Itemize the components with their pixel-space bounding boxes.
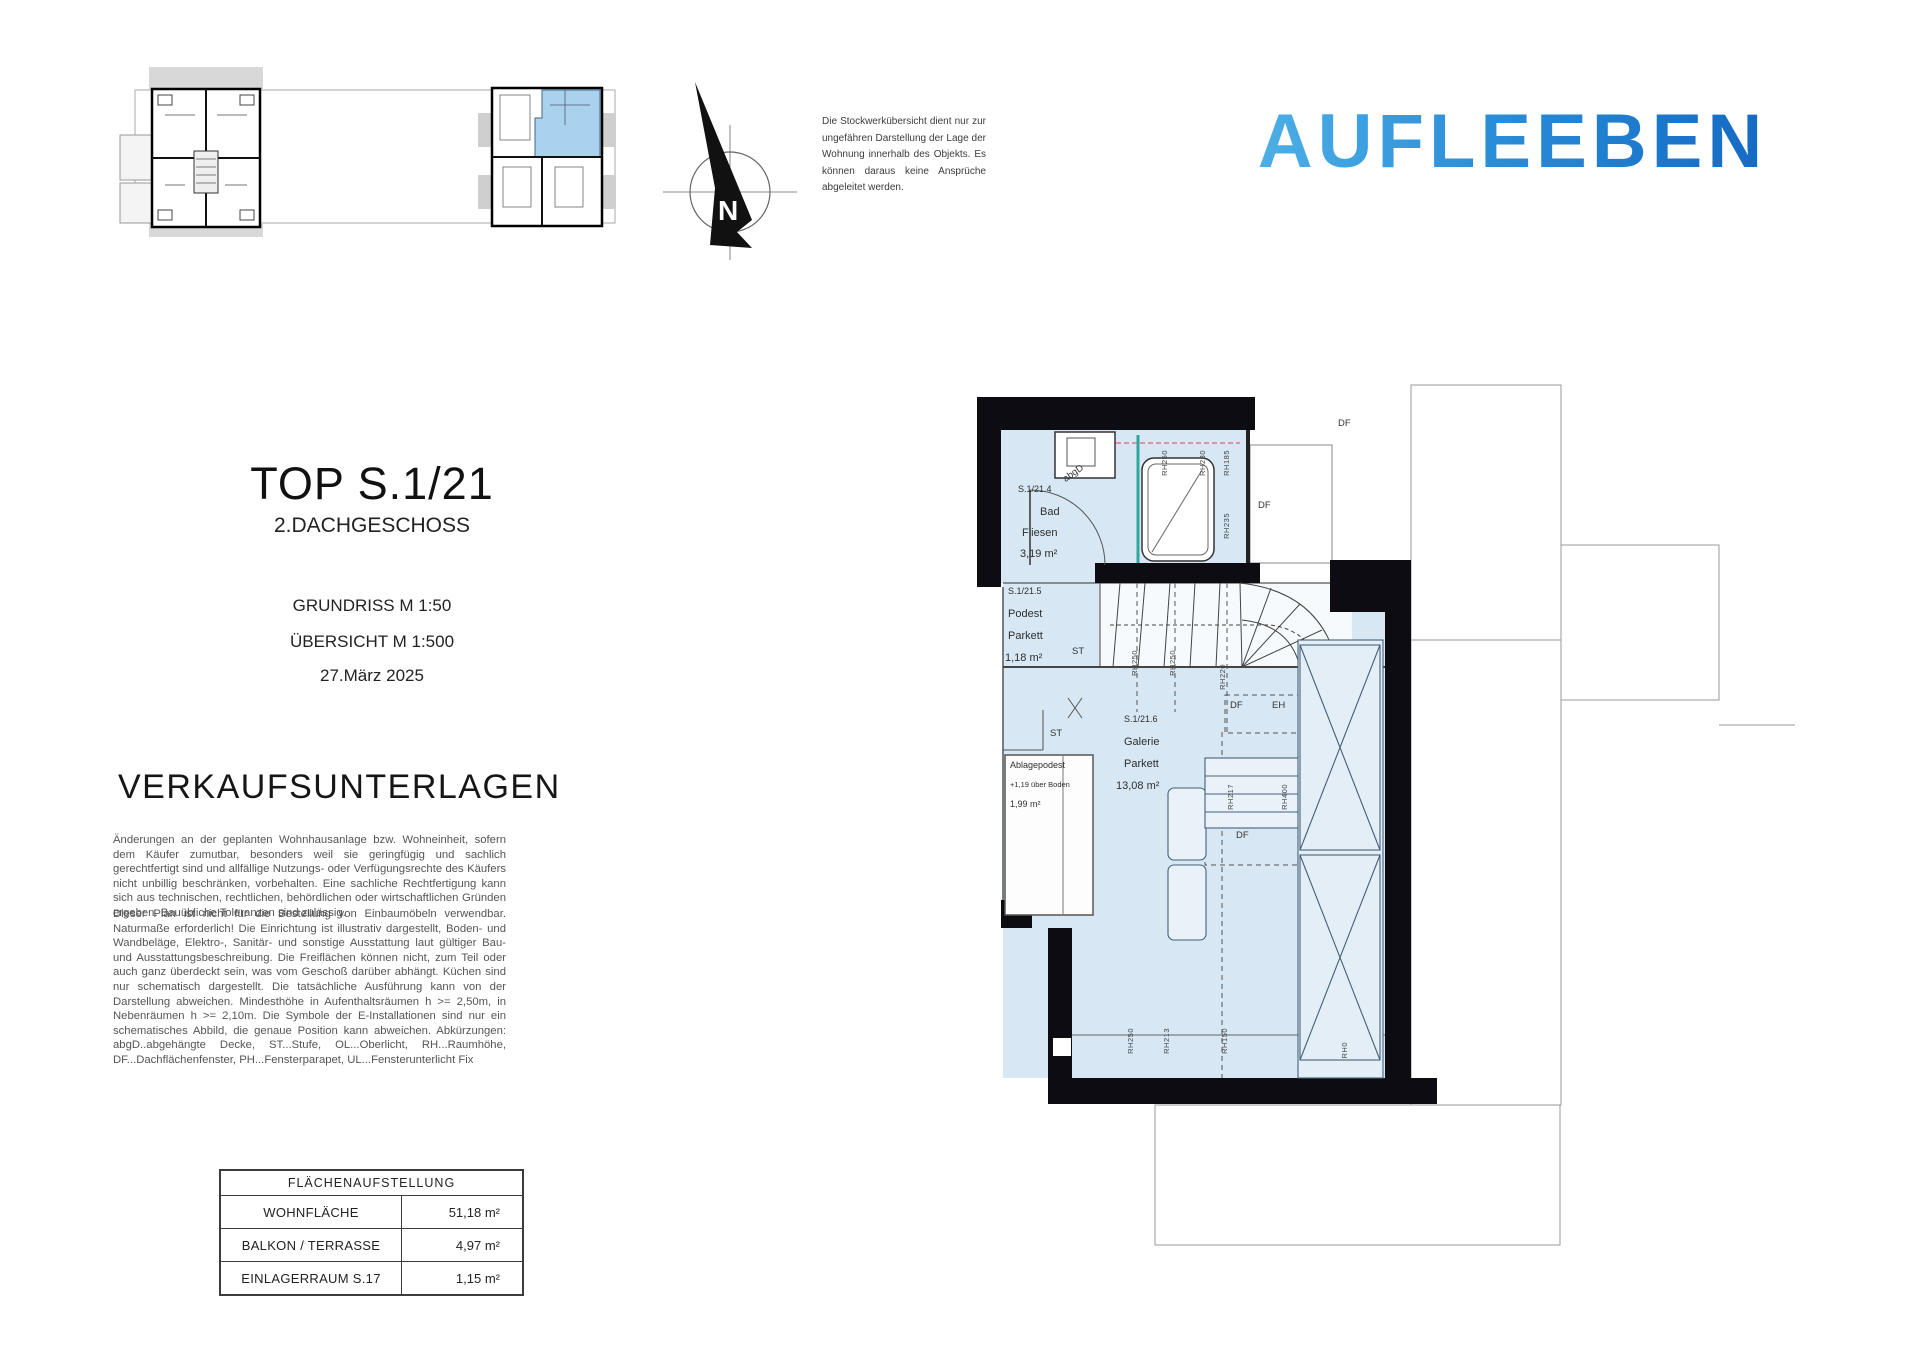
room-area: 1,18 m² [1005, 652, 1042, 664]
room-floor: Fliesen [1022, 527, 1057, 539]
df-label: DF [1230, 700, 1243, 711]
room-area: 13,08 m² [1116, 780, 1159, 792]
df-label: DF [1338, 418, 1351, 429]
rh-label: RH250 [1160, 450, 1169, 476]
ablagepodest-name: Ablagepodest [1010, 760, 1065, 770]
room-name: Galerie [1124, 736, 1159, 748]
rh-label: RH217 [1226, 784, 1235, 810]
rh-label: RH235 [1222, 513, 1231, 539]
rh-label: RH400 [1280, 784, 1289, 810]
abgd-label: abgD [1061, 462, 1086, 484]
room-id: S.1/21.6 [1124, 714, 1158, 724]
eh-label: EH [1272, 700, 1285, 711]
df-label: DF [1236, 830, 1249, 841]
room-floor: Parkett [1008, 630, 1043, 642]
room-name: Podest [1008, 608, 1042, 620]
st-label: ST [1072, 646, 1084, 657]
floor-plan-labels: S.1/21.4 Bad Fliesen 3,19 m² S.1/21.5 Po… [0, 0, 1920, 1358]
rh-label: RH0 [1340, 1042, 1349, 1059]
room-name: Bad [1040, 506, 1060, 518]
rh-label: RH230 [1198, 450, 1207, 476]
rh-label: RH185 [1222, 450, 1231, 476]
room-area: 3,19 m² [1020, 548, 1057, 560]
rh-label: RH250 [1130, 650, 1139, 676]
rh-label: RH250 [1168, 650, 1177, 676]
st-label: ST [1050, 728, 1062, 739]
sales-document-page: N Die Stockwerkübersicht dient nur zur u… [0, 0, 1920, 1358]
room-id: S.1/21.5 [1008, 586, 1042, 596]
ablagepodest-area: 1,99 m² [1010, 799, 1041, 809]
rh-label: RH213 [1162, 1028, 1171, 1054]
room-floor: Parkett [1124, 758, 1159, 770]
rh-label: RH150 [1220, 1028, 1229, 1054]
ablagepodest-note: +1,19 über Boden [1010, 780, 1070, 789]
rh-label: RH250 [1126, 1028, 1135, 1054]
df-label: DF [1258, 500, 1271, 511]
room-id: S.1/21.4 [1018, 484, 1052, 494]
rh-label: RH220 [1218, 664, 1227, 690]
